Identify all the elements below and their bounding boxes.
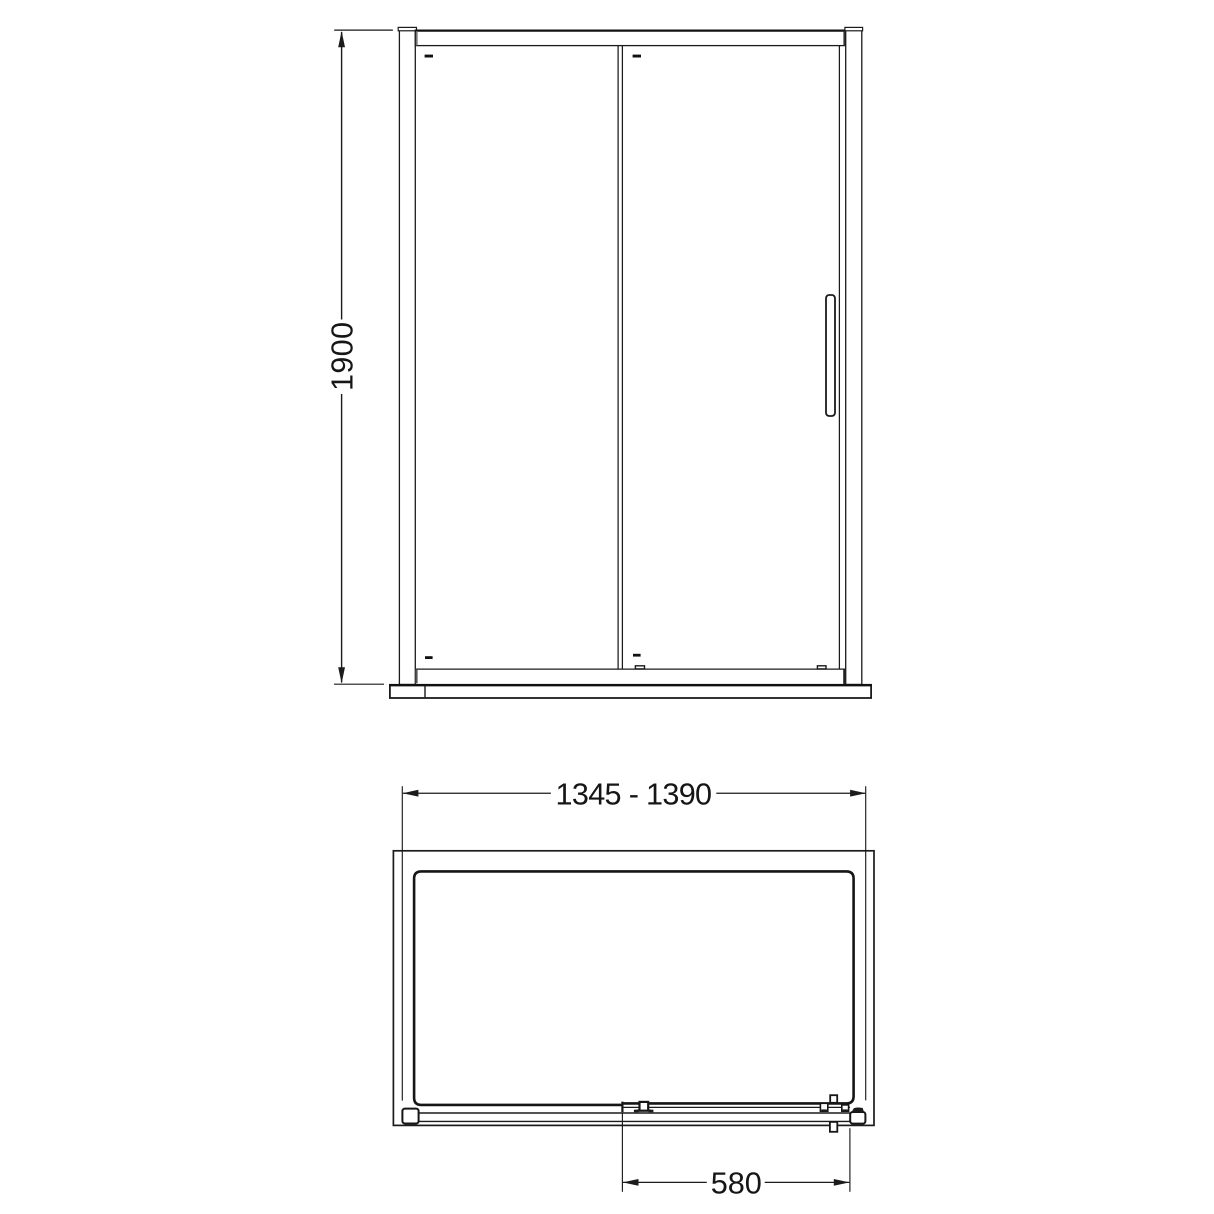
svg-text:580: 580 <box>711 1166 762 1201</box>
svg-text:1345 - 1390: 1345 - 1390 <box>556 778 713 812</box>
svg-text:1900: 1900 <box>326 322 360 391</box>
